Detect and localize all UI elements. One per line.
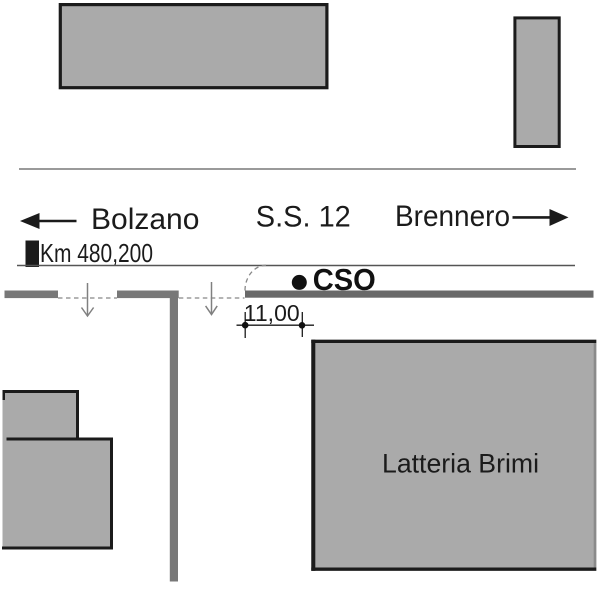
svg-text:Brennero: Brennero — [395, 200, 510, 233]
svg-text:11,00: 11,00 — [244, 300, 300, 326]
svg-text:CSO: CSO — [313, 263, 376, 297]
svg-text:Km 480,200: Km 480,200 — [40, 238, 153, 268]
svg-text:Latteria Brimi: Latteria Brimi — [382, 448, 539, 478]
svg-text:Bolzano: Bolzano — [91, 203, 199, 236]
svg-text:S.S. 12: S.S. 12 — [256, 200, 351, 233]
